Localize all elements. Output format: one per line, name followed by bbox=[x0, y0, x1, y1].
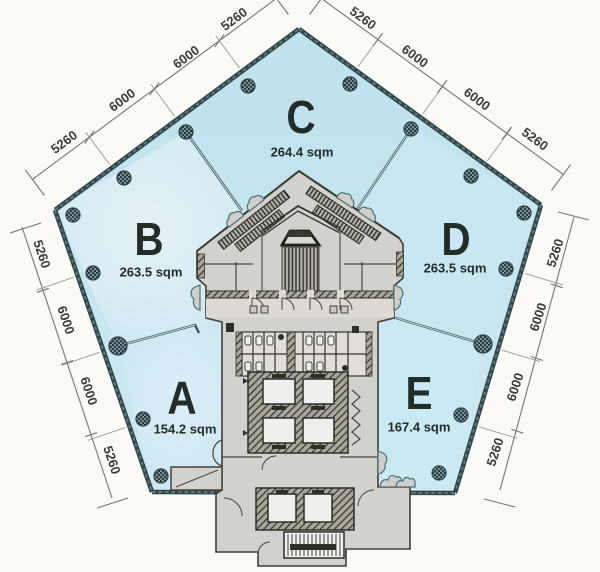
svg-text:B: B bbox=[134, 215, 163, 266]
svg-text:264.4 sqm: 264.4 sqm bbox=[271, 145, 334, 160]
svg-text:D: D bbox=[441, 215, 470, 266]
svg-text:E: E bbox=[406, 369, 433, 420]
svg-text:263.5 sqm: 263.5 sqm bbox=[120, 265, 183, 280]
svg-text:263.5 sqm: 263.5 sqm bbox=[424, 261, 487, 276]
svg-text:154.2 sqm: 154.2 sqm bbox=[154, 422, 217, 437]
svg-text:167.4 sqm: 167.4 sqm bbox=[388, 420, 451, 435]
svg-text:C: C bbox=[286, 93, 315, 144]
svg-text:A: A bbox=[167, 373, 196, 424]
